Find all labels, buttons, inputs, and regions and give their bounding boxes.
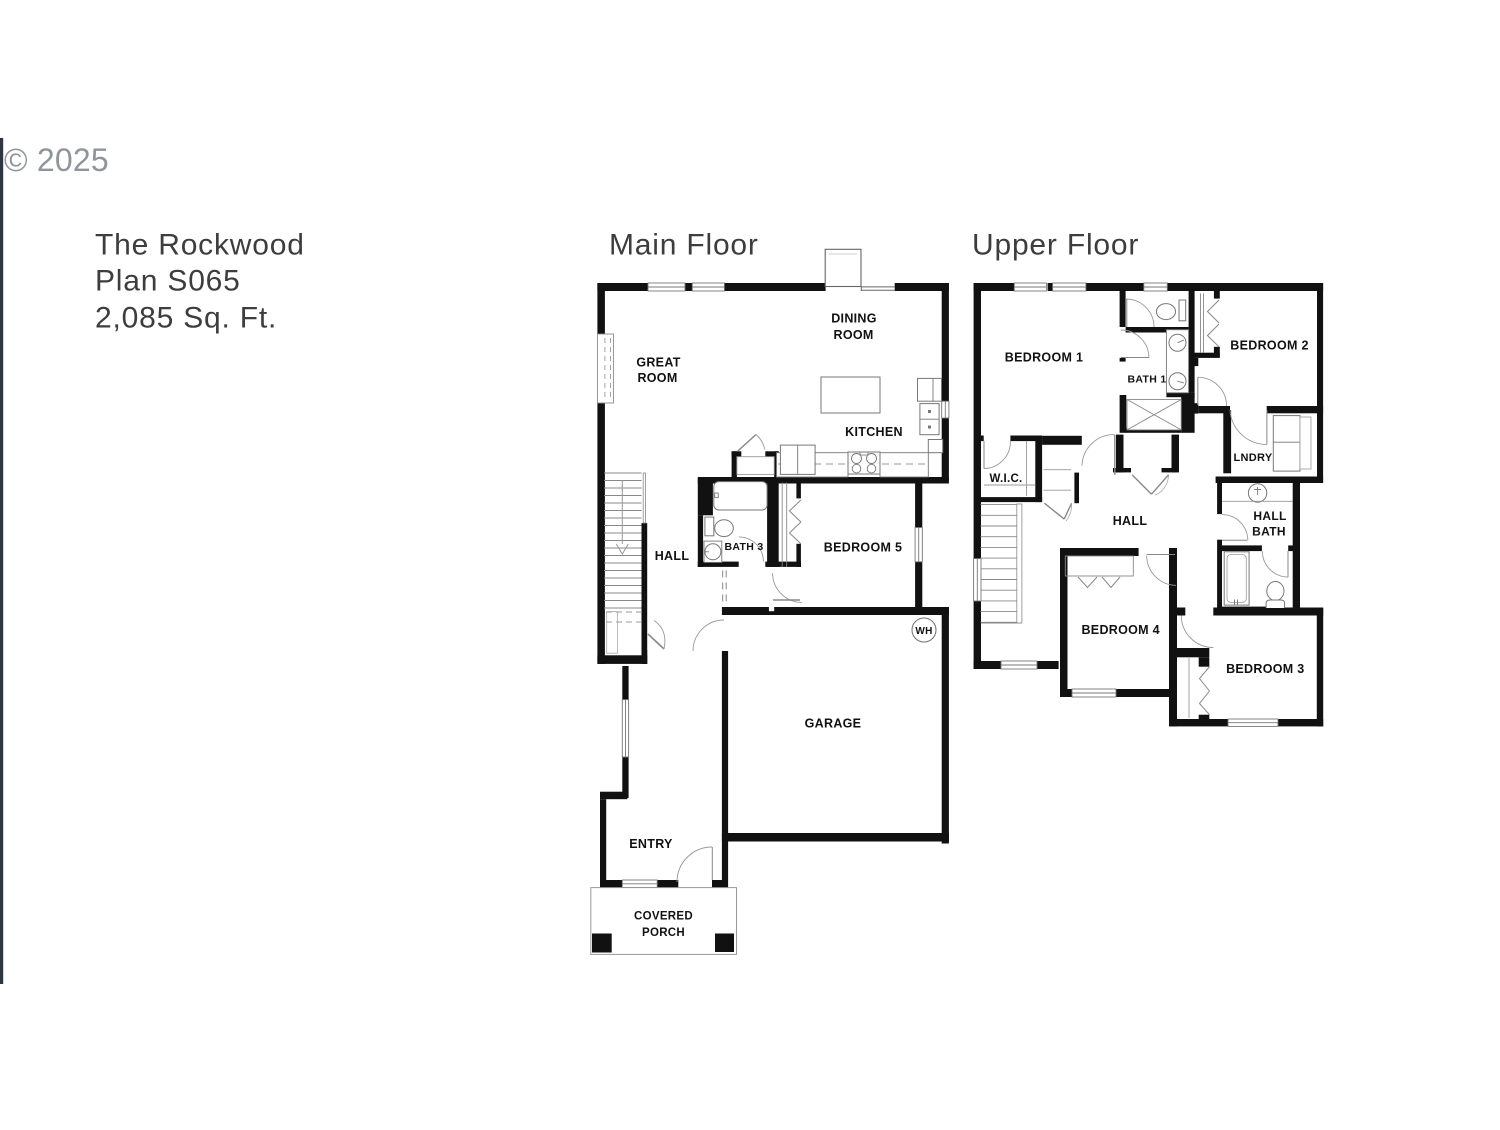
svg-text:2,085 Sq. Ft.: 2,085 Sq. Ft. (95, 301, 277, 334)
svg-text:BATH 1: BATH 1 (1128, 374, 1167, 386)
svg-text:ROOM: ROOM (637, 371, 677, 385)
svg-text:BATH: BATH (1252, 525, 1286, 539)
svg-text:DINING: DINING (831, 312, 877, 326)
svg-text:LNDRY: LNDRY (1234, 452, 1273, 464)
svg-text:Main Floor: Main Floor (609, 228, 759, 261)
svg-text:ENTRY: ENTRY (629, 837, 673, 851)
svg-text:ROOM: ROOM (834, 328, 874, 342)
svg-text:PORCH: PORCH (642, 927, 685, 939)
svg-text:GREAT: GREAT (636, 356, 680, 370)
svg-text:WH: WH (915, 626, 932, 637)
svg-text:Upper Floor: Upper Floor (972, 228, 1139, 261)
svg-text:HALL: HALL (655, 549, 690, 563)
svg-text:BEDROOM 3: BEDROOM 3 (1226, 662, 1304, 676)
svg-text:W.I.C.: W.I.C. (989, 473, 1022, 485)
svg-text:Plan S065: Plan S065 (95, 265, 241, 298)
svg-text:BEDROOM 5: BEDROOM 5 (824, 541, 902, 555)
svg-text:© 2025: © 2025 (4, 142, 109, 178)
svg-text:KITCHEN: KITCHEN (845, 425, 903, 439)
svg-text:BEDROOM 1: BEDROOM 1 (1005, 351, 1083, 365)
svg-text:The Rockwood: The Rockwood (95, 229, 305, 262)
svg-text:BATH 3: BATH 3 (725, 541, 764, 553)
svg-text:BEDROOM 2: BEDROOM 2 (1230, 339, 1308, 353)
svg-text:HALL: HALL (1253, 509, 1286, 523)
svg-text:GARAGE: GARAGE (805, 717, 862, 731)
svg-text:BEDROOM 4: BEDROOM 4 (1081, 623, 1159, 637)
svg-text:HALL: HALL (1113, 514, 1148, 528)
svg-text:COVERED: COVERED (634, 911, 693, 923)
